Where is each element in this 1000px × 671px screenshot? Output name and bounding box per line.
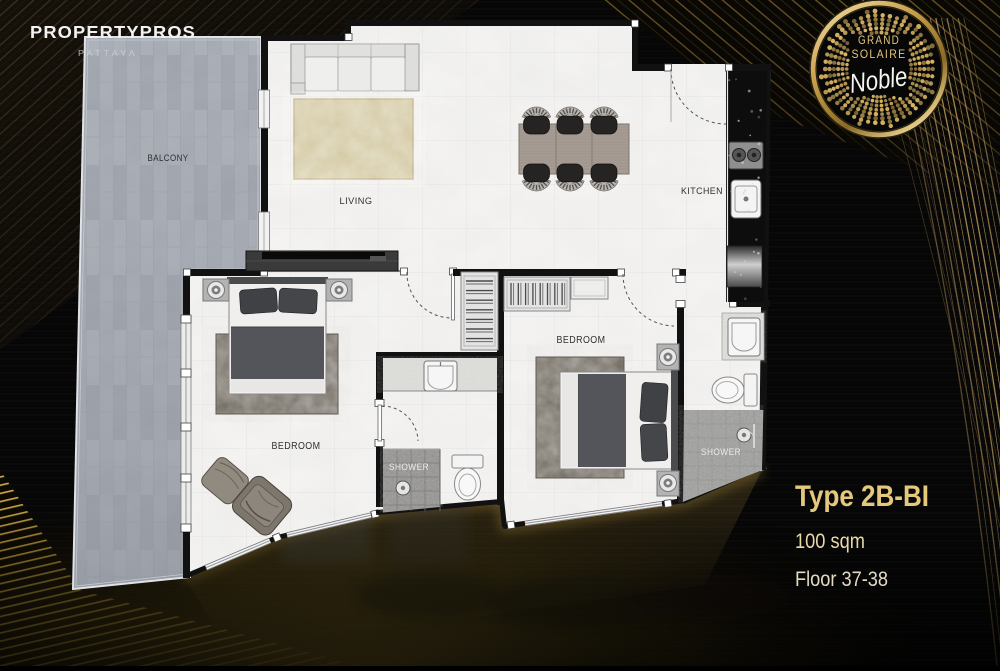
svg-text:Floor 37-38: Floor 37-38 — [795, 568, 888, 591]
svg-text:100 sqm: 100 sqm — [795, 529, 865, 553]
svg-text:PROPERTYPROS: PROPERTYPROS — [30, 22, 196, 42]
svg-text:PATTAYA: PATTAYA — [78, 48, 138, 58]
svg-text:LIVING: LIVING — [340, 196, 373, 207]
svg-text:BEDROOM: BEDROOM — [557, 335, 606, 346]
svg-text:SOLAIRE: SOLAIRE — [852, 47, 907, 61]
svg-text:KITCHEN: KITCHEN — [681, 186, 723, 197]
svg-text:Type 2B-BI: Type 2B-BI — [795, 480, 929, 513]
svg-text:SHOWER: SHOWER — [701, 447, 741, 457]
svg-text:SHOWER: SHOWER — [389, 462, 429, 472]
svg-text:GRAND: GRAND — [858, 33, 900, 47]
svg-text:BEDROOM: BEDROOM — [272, 441, 321, 452]
svg-text:BALCONY: BALCONY — [148, 153, 189, 164]
